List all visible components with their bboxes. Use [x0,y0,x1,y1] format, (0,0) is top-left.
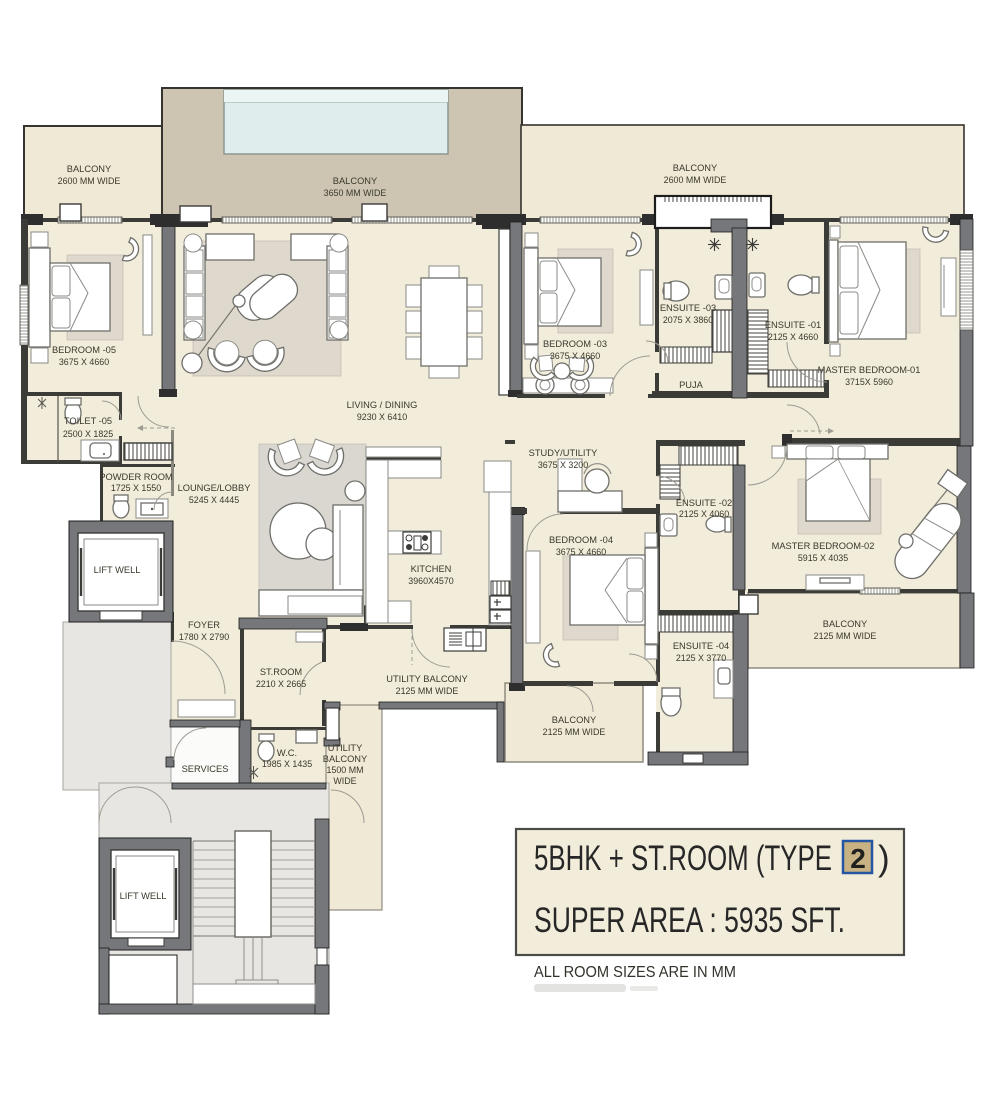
svg-text:2: 2 [850,843,866,874]
svg-text:ALL ROOM SIZES ARE IN MM: ALL ROOM SIZES ARE IN MM [534,964,736,981]
svg-text:ENSUITE -02: ENSUITE -02 [676,498,732,508]
svg-text:ENSUITE -01: ENSUITE -01 [765,320,821,330]
svg-text:2210 X 2665: 2210 X 2665 [256,679,306,689]
svg-text:BALCONY: BALCONY [323,754,367,764]
svg-text:ENSUITE -04: ENSUITE -04 [673,641,729,651]
svg-text:3675 X 4660: 3675 X 4660 [550,351,600,361]
svg-text:5BHK + ST.ROOM (TYPE: 5BHK + ST.ROOM (TYPE [534,839,832,878]
svg-text:2125 MM WIDE: 2125 MM WIDE [814,631,877,641]
svg-text:3675 X 3200: 3675 X 3200 [538,460,588,470]
svg-text:ENSUITE -03: ENSUITE -03 [660,303,716,313]
svg-text:WIDE: WIDE [333,776,356,786]
svg-text:1780 X 2790: 1780 X 2790 [179,632,229,642]
svg-text:W.C.: W.C. [277,748,297,758]
svg-text:STUDY/UTILITY: STUDY/UTILITY [529,448,598,458]
svg-text:SUPER AREA : 5935 SFT.: SUPER AREA : 5935 SFT. [534,901,845,940]
svg-text:LIFT WELL: LIFT WELL [120,891,167,901]
svg-text:1725 X 1550: 1725 X 1550 [111,483,161,493]
svg-text:BEDROOM -03: BEDROOM -03 [543,339,607,349]
svg-text:BALCONY: BALCONY [552,715,596,725]
svg-text:BALCONY: BALCONY [333,176,377,186]
svg-text:BALCONY: BALCONY [673,163,717,173]
svg-text:UTILITY BALCONY: UTILITY BALCONY [386,674,467,684]
svg-text:POWDER ROOM: POWDER ROOM [99,472,172,482]
svg-text:2500 X 1825: 2500 X 1825 [63,429,113,439]
svg-text:): ) [878,839,890,878]
svg-text:2075 X 3860: 2075 X 3860 [663,315,713,325]
svg-text:LOUNGE/LOBBY: LOUNGE/LOBBY [178,483,251,493]
svg-text:BALCONY: BALCONY [67,164,111,174]
svg-text:2125 MM WIDE: 2125 MM WIDE [543,727,606,737]
svg-text:MASTER BEDROOM-01: MASTER BEDROOM-01 [818,365,921,375]
svg-text:3675 X 4660: 3675 X 4660 [556,547,606,557]
svg-text:3650 MM WIDE: 3650 MM WIDE [324,188,387,198]
svg-text:PUJA: PUJA [679,380,704,390]
svg-text:2600 MM WIDE: 2600 MM WIDE [664,175,727,185]
svg-text:MASTER BEDROOM-02: MASTER BEDROOM-02 [772,541,875,551]
svg-text:2600 MM WIDE: 2600 MM WIDE [58,176,121,186]
svg-text:LIVING / DINING: LIVING / DINING [347,400,418,410]
svg-text:KITCHEN: KITCHEN [411,564,452,574]
svg-text:3960X4570: 3960X4570 [408,576,453,586]
svg-text:2125 X 4060: 2125 X 4060 [679,509,729,519]
svg-text:5245 X 4445: 5245 X 4445 [189,495,239,505]
svg-text:UTILITY: UTILITY [328,743,363,753]
svg-text:TOILET -05: TOILET -05 [64,416,112,426]
svg-text:1985 X 1435: 1985 X 1435 [262,759,312,769]
svg-text:2125 MM WIDE: 2125 MM WIDE [396,686,459,696]
svg-text:3715X 5960: 3715X 5960 [845,377,893,387]
svg-text:BEDROOM -05: BEDROOM -05 [52,345,116,355]
svg-text:BALCONY: BALCONY [823,619,867,629]
svg-text:5915 X 4035: 5915 X 4035 [798,553,848,563]
svg-text:2125 X 3770: 2125 X 3770 [676,653,726,663]
svg-text:2125 X 4660: 2125 X 4660 [768,332,818,342]
svg-text:BEDROOM -04: BEDROOM -04 [549,535,613,545]
svg-text:ST.ROOM: ST.ROOM [260,667,302,677]
svg-text:FOYER: FOYER [188,620,220,630]
svg-text:LIFT WELL: LIFT WELL [94,565,141,575]
svg-text:SERVICES: SERVICES [182,764,229,774]
svg-text:1500 MM: 1500 MM [327,765,364,775]
svg-text:3675 X 4660: 3675 X 4660 [59,357,109,367]
svg-text:9230 X 6410: 9230 X 6410 [357,412,407,422]
